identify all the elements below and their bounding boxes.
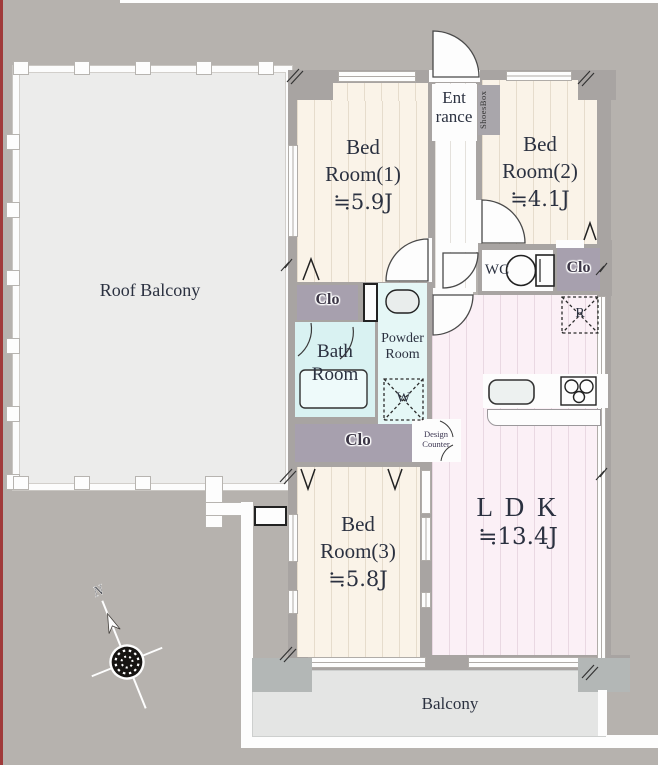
floor-plan: N Roof Balcony Bed Room(1) ≒5.9J Bed Roo… — [0, 0, 658, 765]
wc-label: WC — [483, 262, 511, 279]
door-opening-wc — [440, 243, 478, 252]
ldk-floor — [432, 295, 597, 655]
powder-line2: Room — [374, 347, 431, 363]
compass-rose — [106, 641, 149, 684]
compass: N — [60, 570, 181, 723]
bedroom2-name-line2: Room(2) — [484, 158, 596, 185]
design-counter-line1: Design — [411, 429, 461, 439]
railing-post — [258, 61, 274, 75]
railing-post — [135, 476, 151, 490]
door-opening-ldk — [433, 288, 473, 296]
design-counter-label: Design Counter — [411, 429, 461, 449]
entrance-line1: Ent — [430, 88, 478, 107]
entrance-label: Ent rance — [430, 88, 478, 126]
bedroom3-name-line2: Room(3) — [295, 538, 421, 565]
ldk-label: L D K ≒13.4J — [443, 491, 593, 551]
refrigerator-label: R — [562, 306, 598, 322]
bedroom2-label: Bed Room(2) ≒4.1J — [484, 131, 596, 213]
entrance-line2: rance — [430, 107, 478, 126]
left-red-edge — [0, 0, 3, 765]
bedroom2-area-label: ≒4.1J — [484, 185, 596, 213]
sliding-door-bedroom3 — [421, 470, 431, 514]
window-bedroom3-right-small — [421, 592, 431, 608]
railing-post — [135, 61, 151, 75]
railing-post — [6, 270, 20, 286]
bath-line2: Room — [293, 363, 377, 386]
kitchen-counter — [483, 374, 608, 408]
bedroom1-name-line1: Bed — [298, 134, 428, 161]
railing-post — [13, 61, 29, 75]
window-ldk-bottom — [468, 657, 596, 668]
railing-post — [196, 61, 212, 75]
powder-room-label: Powder Room — [374, 331, 431, 363]
railing-post — [13, 476, 29, 490]
window-bedroom1-left — [288, 145, 298, 237]
bedroom2-name-line1: Bed — [484, 131, 596, 158]
window-bedroom3-bottom — [308, 657, 426, 668]
washing-machine-label: W — [384, 390, 423, 407]
bedroom1-name-line2: Room(1) — [298, 161, 428, 188]
railing-post — [6, 338, 20, 354]
door-leaf-bedroom2 — [476, 200, 482, 243]
ldk-area-label: ≒13.4J — [443, 523, 593, 551]
closet-hall-label: Clo — [557, 259, 600, 277]
washbasin-cabinet — [363, 283, 378, 322]
roof-balcony-area — [13, 66, 292, 490]
railing-post — [6, 134, 20, 150]
bedroom1-area-label: ≒5.9J — [298, 188, 428, 216]
window-bedroom3-left-small — [288, 590, 298, 614]
bedroom3-label: Bed Room(3) ≒5.8J — [295, 511, 421, 593]
design-counter-line2: Counter — [411, 439, 461, 449]
balcony-label: Balcony — [380, 694, 520, 714]
railing-post — [6, 406, 20, 422]
bedroom3-area-label: ≒5.8J — [295, 565, 421, 593]
bedroom1-floor-top — [330, 83, 428, 101]
window-bedroom3-right — [421, 517, 431, 561]
bedroom3-name-line1: Bed — [295, 511, 421, 538]
railing-post — [74, 476, 90, 490]
closet-mid-label: Clo — [297, 291, 358, 309]
railing-post — [6, 202, 20, 218]
bedroom1-label: Bed Room(1) ≒5.9J — [298, 134, 428, 216]
balcony-side-wall — [252, 658, 312, 692]
bath-room-label: Bath Room — [293, 340, 377, 386]
top-white-edge — [120, 0, 658, 3]
balcony-side-wall — [578, 658, 630, 692]
wall-top-right-corner — [578, 70, 616, 100]
window-bedroom1-top — [338, 71, 416, 82]
kitchen-counter-front — [487, 409, 601, 426]
closet-south-label: Clo — [295, 430, 421, 450]
balcony-right-rail — [598, 690, 607, 736]
compass-north-label: N — [90, 582, 107, 601]
meter-box — [254, 506, 287, 526]
entrance-sill — [429, 70, 480, 82]
bath-line1: Bath — [293, 340, 377, 363]
window-ldk-right — [597, 296, 606, 664]
roof-balcony-label: Roof Balcony — [60, 280, 240, 301]
powder-line1: Powder — [374, 331, 431, 347]
railing-post — [74, 61, 90, 75]
ldk-name: L D K — [443, 491, 593, 523]
window-bedroom2-top — [506, 71, 572, 81]
compass-needle — [102, 612, 120, 634]
door-leaf-bedroom1 — [424, 238, 432, 282]
shoes-box: ShoesBox — [478, 85, 500, 135]
wall-bedroom1-notch — [297, 83, 333, 100]
opening-closet-hall — [556, 240, 584, 248]
